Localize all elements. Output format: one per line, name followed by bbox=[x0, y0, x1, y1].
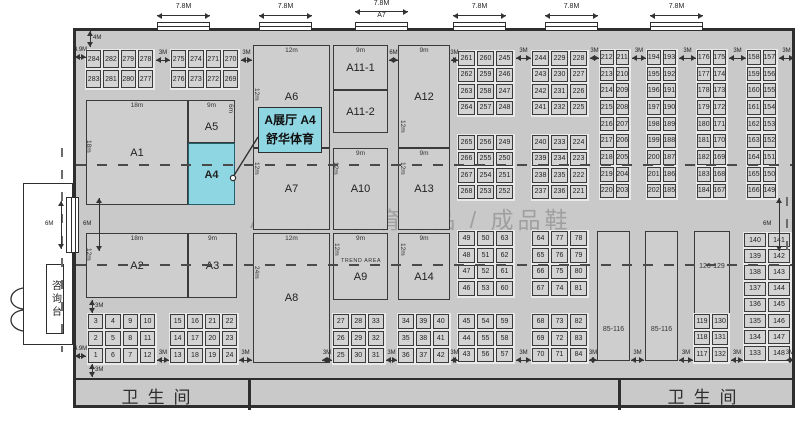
booth-217[interactable]: 217 bbox=[600, 134, 614, 149]
booth-150[interactable]: 150 bbox=[763, 167, 777, 182]
zone-85-116-a[interactable]: 85-116 bbox=[597, 231, 630, 361]
booth-201[interactable]: 201 bbox=[647, 167, 661, 182]
booth-5[interactable]: 5 bbox=[105, 331, 120, 346]
booth-164[interactable]: 164 bbox=[747, 150, 761, 165]
dim-line bbox=[779, 198, 780, 251]
aisle-line bbox=[61, 148, 63, 352]
booth-64[interactable]: 64 bbox=[532, 231, 549, 246]
dim-label: 6M bbox=[45, 221, 53, 227]
dim-arrowhead bbox=[741, 55, 746, 61]
zone-label-A11-2: A11-2 bbox=[334, 106, 387, 118]
booth-56[interactable]: 56 bbox=[477, 348, 494, 363]
dim-arrowhead bbox=[593, 13, 598, 19]
booth-276[interactable]: 276 bbox=[171, 70, 186, 88]
booth-59[interactable]: 59 bbox=[496, 314, 513, 329]
booth-47[interactable]: 47 bbox=[458, 265, 475, 280]
booth-188[interactable]: 188 bbox=[663, 134, 677, 149]
booth-152[interactable]: 152 bbox=[763, 134, 777, 149]
zone-A9[interactable]: 9mA9 bbox=[333, 233, 388, 300]
booth-20[interactable]: 20 bbox=[205, 331, 220, 346]
booth-263[interactable]: 263 bbox=[458, 84, 475, 99]
booth-48[interactable]: 48 bbox=[458, 248, 475, 263]
booth-166[interactable]: 166 bbox=[747, 184, 761, 199]
booth-39[interactable]: 39 bbox=[416, 314, 432, 329]
booth-135[interactable]: 135 bbox=[744, 314, 766, 328]
booth-65[interactable]: 65 bbox=[532, 248, 549, 263]
booth-grid-c-194: 1941931951921961911971901981891991882001… bbox=[646, 49, 678, 200]
dim-arrowhead bbox=[789, 55, 794, 61]
booth-77[interactable]: 77 bbox=[551, 231, 568, 246]
dim-arrowhead bbox=[650, 13, 655, 19]
booth-274[interactable]: 274 bbox=[188, 50, 203, 68]
booth-3[interactable]: 3 bbox=[88, 314, 103, 329]
booth-162[interactable]: 162 bbox=[747, 117, 761, 132]
booth-189[interactable]: 189 bbox=[663, 117, 677, 132]
booth-236[interactable]: 236 bbox=[551, 185, 568, 200]
booth-231[interactable]: 231 bbox=[551, 84, 568, 99]
booth-76[interactable]: 76 bbox=[551, 248, 568, 263]
booth-134[interactable]: 134 bbox=[744, 330, 766, 344]
dim-arrowhead bbox=[776, 198, 782, 203]
booth-40[interactable]: 40 bbox=[433, 314, 449, 329]
booth-71[interactable]: 71 bbox=[551, 348, 568, 363]
booth-140[interactable]: 140 bbox=[744, 233, 766, 247]
booth-49[interactable]: 49 bbox=[458, 231, 475, 246]
booth-9[interactable]: 9 bbox=[123, 314, 138, 329]
booth-21[interactable]: 21 bbox=[205, 314, 220, 329]
dim-arrowhead bbox=[307, 13, 312, 19]
booth-272[interactable]: 272 bbox=[206, 70, 221, 88]
booth-grid-g-34: 343940353841363742 bbox=[397, 313, 451, 365]
zone-label-A9: A9 bbox=[334, 271, 387, 283]
booth-198[interactable]: 198 bbox=[647, 117, 661, 132]
dim-arrowhead bbox=[679, 357, 684, 363]
booth-33[interactable]: 33 bbox=[368, 314, 384, 329]
top-door-1 bbox=[157, 22, 210, 31]
booth-277[interactable]: 277 bbox=[138, 70, 153, 88]
side-dim-label: 12m bbox=[85, 248, 92, 261]
booth-180[interactable]: 180 bbox=[697, 117, 711, 132]
booth-237[interactable]: 237 bbox=[532, 185, 549, 200]
booth-82[interactable]: 82 bbox=[570, 314, 587, 329]
booth-170[interactable]: 170 bbox=[713, 134, 727, 149]
booth-168[interactable]: 168 bbox=[713, 167, 727, 182]
booth-16[interactable]: 16 bbox=[187, 314, 202, 329]
booth-196[interactable]: 196 bbox=[647, 83, 661, 98]
booth-172[interactable]: 172 bbox=[713, 100, 727, 115]
booth-183[interactable]: 183 bbox=[697, 167, 711, 182]
dim-arrowhead bbox=[327, 357, 332, 363]
booth-146[interactable]: 146 bbox=[768, 314, 790, 328]
booth-grid-g-284: 284282279278283281280277 bbox=[85, 49, 155, 90]
dim-label: 3M bbox=[674, 48, 702, 54]
zone-A7[interactable]: A7 bbox=[253, 148, 330, 230]
booth-173[interactable]: 173 bbox=[713, 83, 727, 98]
booth-160[interactable]: 160 bbox=[747, 83, 761, 98]
booth-247[interactable]: 247 bbox=[496, 84, 513, 99]
zone-label-A7: A7 bbox=[254, 183, 329, 195]
booth-55[interactable]: 55 bbox=[477, 331, 494, 346]
dim-arrowhead bbox=[96, 198, 102, 203]
booth-69[interactable]: 69 bbox=[532, 331, 549, 346]
booth-81[interactable]: 81 bbox=[570, 281, 587, 296]
booth-262[interactable]: 262 bbox=[458, 68, 475, 83]
booth-253[interactable]: 253 bbox=[477, 185, 494, 200]
booth-61[interactable]: 61 bbox=[496, 265, 513, 280]
dim-arrowhead bbox=[594, 55, 599, 61]
zone-A4[interactable]: A4 bbox=[188, 143, 235, 205]
booth-243[interactable]: 243 bbox=[532, 68, 549, 83]
booth-224[interactable]: 224 bbox=[570, 135, 587, 150]
booth-184[interactable]: 184 bbox=[697, 184, 711, 199]
dim-arrowhead bbox=[241, 57, 246, 63]
dim-label: 3M bbox=[579, 350, 607, 356]
booth-153[interactable]: 153 bbox=[763, 117, 777, 132]
booth-118[interactable]: 118 bbox=[694, 331, 710, 346]
booth-10[interactable]: 10 bbox=[140, 314, 155, 329]
booth-22[interactable]: 22 bbox=[222, 314, 237, 329]
zone-label-A12: A12 bbox=[399, 91, 449, 103]
zone-label-A10: A10 bbox=[334, 183, 387, 195]
booth-165[interactable]: 165 bbox=[747, 167, 761, 182]
booth-60[interactable]: 60 bbox=[496, 281, 513, 296]
booth-268[interactable]: 268 bbox=[458, 185, 475, 200]
booth-257[interactable]: 257 bbox=[477, 101, 494, 116]
booth-206[interactable]: 206 bbox=[616, 134, 630, 149]
dim-label: 6M bbox=[83, 221, 91, 227]
dim-arrowhead bbox=[165, 57, 170, 63]
booth-18[interactable]: 18 bbox=[187, 348, 202, 363]
booth-130[interactable]: 130 bbox=[712, 314, 728, 329]
booth-28[interactable]: 28 bbox=[351, 314, 367, 329]
booth-119[interactable]: 119 bbox=[694, 314, 710, 329]
booth-62[interactable]: 62 bbox=[496, 248, 513, 263]
booth-131[interactable]: 131 bbox=[712, 331, 728, 346]
booth-185[interactable]: 185 bbox=[663, 184, 677, 199]
booth-68[interactable]: 68 bbox=[532, 314, 549, 329]
booth-240[interactable]: 240 bbox=[532, 135, 549, 150]
booth-200[interactable]: 200 bbox=[647, 150, 661, 165]
dim-arrowhead bbox=[453, 57, 458, 63]
booth-79[interactable]: 79 bbox=[570, 248, 587, 263]
dim-line bbox=[650, 15, 703, 16]
dim-label: 3M bbox=[232, 350, 260, 356]
booth-279[interactable]: 279 bbox=[121, 50, 136, 68]
dim-arrowhead bbox=[58, 244, 64, 249]
side-dim-label: 12m bbox=[333, 243, 340, 256]
dim-arrowhead bbox=[157, 357, 162, 363]
booth-209[interactable]: 209 bbox=[616, 83, 630, 98]
booth-216[interactable]: 216 bbox=[600, 117, 614, 132]
dim-label: 3M bbox=[313, 350, 341, 356]
booth-227[interactable]: 227 bbox=[570, 68, 587, 83]
booth-34[interactable]: 34 bbox=[398, 314, 414, 329]
zone-A8[interactable]: 12mA8 bbox=[253, 233, 330, 363]
booth-74[interactable]: 74 bbox=[551, 281, 568, 296]
booth-258[interactable]: 258 bbox=[477, 84, 494, 99]
booth-139[interactable]: 139 bbox=[744, 249, 766, 263]
booth-222[interactable]: 222 bbox=[570, 168, 587, 183]
dim-label: 4.9M bbox=[67, 346, 95, 352]
booth-215[interactable]: 215 bbox=[600, 100, 614, 115]
booth-226[interactable]: 226 bbox=[570, 84, 587, 99]
zone-label-A13: A13 bbox=[399, 183, 449, 195]
booth-249[interactable]: 249 bbox=[496, 135, 513, 150]
booth-8[interactable]: 8 bbox=[123, 331, 138, 346]
entrance-door-arc-bottom bbox=[11, 310, 23, 331]
booth-grid-g-1: 349102581116712 bbox=[87, 313, 157, 365]
booth-17[interactable]: 17 bbox=[187, 331, 202, 346]
dim-arrowhead bbox=[81, 353, 86, 359]
booth-220[interactable]: 220 bbox=[600, 184, 614, 199]
booth-54[interactable]: 54 bbox=[477, 314, 494, 329]
booth-235[interactable]: 235 bbox=[551, 168, 568, 183]
zone-120-129[interactable]: 120-129 bbox=[694, 231, 730, 315]
booth-67[interactable]: 67 bbox=[532, 281, 549, 296]
dim-arrowhead bbox=[96, 246, 102, 251]
booth-202[interactable]: 202 bbox=[647, 184, 661, 199]
booth-147[interactable]: 147 bbox=[768, 330, 790, 344]
zone-label-A11-1: A11-1 bbox=[334, 62, 387, 74]
dim-arrowhead bbox=[239, 357, 244, 363]
booth-229[interactable]: 229 bbox=[551, 51, 568, 66]
zone-label-A6: A6 bbox=[254, 91, 329, 103]
booth-205[interactable]: 205 bbox=[616, 150, 630, 165]
booth-225[interactable]: 225 bbox=[570, 101, 587, 116]
booth-156[interactable]: 156 bbox=[763, 67, 777, 82]
booth-167[interactable]: 167 bbox=[713, 184, 727, 199]
booth-219[interactable]: 219 bbox=[600, 167, 614, 182]
dim-arrowhead bbox=[779, 55, 784, 61]
dim-line bbox=[545, 15, 598, 16]
booth-259[interactable]: 259 bbox=[477, 68, 494, 83]
booth-161[interactable]: 161 bbox=[747, 100, 761, 115]
booth-213[interactable]: 213 bbox=[600, 67, 614, 82]
booth-11[interactable]: 11 bbox=[140, 331, 155, 346]
top-door-4 bbox=[453, 22, 506, 31]
booth-23[interactable]: 23 bbox=[222, 331, 237, 346]
zone-A11-2[interactable]: A11-2 bbox=[333, 90, 388, 133]
booth-58[interactable]: 58 bbox=[496, 331, 513, 346]
booth-53[interactable]: 53 bbox=[477, 281, 494, 296]
booth-187[interactable]: 187 bbox=[663, 150, 677, 165]
booth-254[interactable]: 254 bbox=[477, 168, 494, 183]
booth-191[interactable]: 191 bbox=[663, 83, 677, 98]
booth-29[interactable]: 29 bbox=[351, 331, 367, 346]
booth-155[interactable]: 155 bbox=[763, 83, 777, 98]
zone-85-116-b[interactable]: 85-116 bbox=[645, 231, 678, 361]
dim-label: 3M bbox=[149, 350, 177, 356]
booth-143[interactable]: 143 bbox=[768, 265, 790, 279]
booth-44[interactable]: 44 bbox=[458, 331, 475, 346]
booth-242[interactable]: 242 bbox=[532, 84, 549, 99]
booth-19[interactable]: 19 bbox=[205, 348, 220, 363]
booth-73[interactable]: 73 bbox=[551, 314, 568, 329]
booth-214[interactable]: 214 bbox=[600, 83, 614, 98]
zone-top-dim-label: 9m bbox=[334, 150, 387, 157]
booth-32[interactable]: 32 bbox=[368, 331, 384, 346]
booth-192[interactable]: 192 bbox=[663, 67, 677, 82]
booth-174[interactable]: 174 bbox=[713, 67, 727, 82]
dim-arrowhead bbox=[403, 9, 408, 15]
booth-283[interactable]: 283 bbox=[86, 70, 101, 88]
booth-grid-c-176: 1761751771741781731791721801711811701821… bbox=[696, 49, 728, 200]
booth-269[interactable]: 269 bbox=[223, 70, 238, 88]
booth-273[interactable]: 273 bbox=[188, 70, 203, 88]
booth-80[interactable]: 80 bbox=[570, 265, 587, 280]
booth-232[interactable]: 232 bbox=[551, 101, 568, 116]
booth-136[interactable]: 136 bbox=[744, 298, 766, 312]
booth-264[interactable]: 264 bbox=[458, 101, 475, 116]
booth-186[interactable]: 186 bbox=[663, 167, 677, 182]
booth-grid-g-261: 261260245262259246263258247264257248 bbox=[457, 50, 515, 117]
booth-26[interactable]: 26 bbox=[333, 331, 349, 346]
booth-169[interactable]: 169 bbox=[713, 150, 727, 165]
booth-35[interactable]: 35 bbox=[398, 331, 414, 346]
booth-138[interactable]: 138 bbox=[744, 265, 766, 279]
dim-arrowhead bbox=[501, 13, 506, 19]
booth-199[interactable]: 199 bbox=[647, 134, 661, 149]
zone-A10[interactable]: 9mA10 bbox=[333, 148, 388, 230]
booth-233[interactable]: 233 bbox=[551, 135, 568, 150]
dim-arrowhead bbox=[392, 357, 397, 363]
dim-line bbox=[355, 11, 408, 12]
booth-51[interactable]: 51 bbox=[477, 248, 494, 263]
dim-label: 4.9M bbox=[67, 47, 95, 53]
booth-207[interactable]: 207 bbox=[616, 117, 630, 132]
booth-45[interactable]: 45 bbox=[458, 314, 475, 329]
booth-265[interactable]: 265 bbox=[458, 135, 475, 150]
booth-38[interactable]: 38 bbox=[416, 331, 432, 346]
top-door-a7-label: A7 bbox=[355, 12, 408, 19]
booth-63[interactable]: 63 bbox=[496, 231, 513, 246]
booth-203[interactable]: 203 bbox=[616, 184, 630, 199]
left-wall-door bbox=[66, 197, 79, 253]
booth-208[interactable]: 208 bbox=[616, 100, 630, 115]
booth-46[interactable]: 46 bbox=[458, 281, 475, 296]
booth-282[interactable]: 282 bbox=[103, 50, 118, 68]
booth-144[interactable]: 144 bbox=[768, 282, 790, 296]
zone-label-A2: A2 bbox=[87, 260, 187, 272]
booth-6[interactable]: 6 bbox=[105, 348, 120, 363]
booth-14[interactable]: 14 bbox=[170, 331, 185, 346]
dim-label: 3M bbox=[581, 48, 609, 54]
zone-label-A1: A1 bbox=[87, 147, 187, 159]
booth-callout-line1: A展厅 A4 bbox=[264, 111, 315, 130]
booth-grid-g-265: 265256249266255250267254251268253252 bbox=[457, 134, 515, 201]
booth-78[interactable]: 78 bbox=[570, 231, 587, 246]
booth-151[interactable]: 151 bbox=[763, 150, 777, 165]
booth-241[interactable]: 241 bbox=[532, 101, 549, 116]
booth-238[interactable]: 238 bbox=[532, 168, 549, 183]
booth-50[interactable]: 50 bbox=[477, 231, 494, 246]
booth-41[interactable]: 41 bbox=[433, 331, 449, 346]
booth-37[interactable]: 37 bbox=[416, 348, 432, 363]
aisle-line bbox=[76, 164, 792, 166]
booth-137[interactable]: 137 bbox=[744, 282, 766, 296]
booth-190[interactable]: 190 bbox=[663, 100, 677, 115]
booth-52[interactable]: 52 bbox=[477, 265, 494, 280]
booth-179[interactable]: 179 bbox=[697, 100, 711, 115]
booth-280[interactable]: 280 bbox=[121, 70, 136, 88]
booth-195[interactable]: 195 bbox=[647, 67, 661, 82]
dim-label: 3M bbox=[672, 350, 700, 356]
booth-83[interactable]: 83 bbox=[570, 331, 587, 346]
booth-218[interactable]: 218 bbox=[600, 150, 614, 165]
restroom-divider bbox=[248, 380, 251, 410]
booth-callout: A展厅 A4 舒华体育 bbox=[258, 107, 322, 153]
booth-204[interactable]: 204 bbox=[616, 167, 630, 182]
booth-72[interactable]: 72 bbox=[551, 331, 568, 346]
booth-163[interactable]: 163 bbox=[747, 134, 761, 149]
booth-75[interactable]: 75 bbox=[551, 265, 568, 280]
booth-251[interactable]: 251 bbox=[496, 168, 513, 183]
booth-171[interactable]: 171 bbox=[713, 117, 727, 132]
booth-178[interactable]: 178 bbox=[697, 83, 711, 98]
zone-label-85-116-a: 85-116 bbox=[598, 326, 629, 333]
booth-252[interactable]: 252 bbox=[496, 185, 513, 200]
booth-248[interactable]: 248 bbox=[496, 101, 513, 116]
dim-label: 6M bbox=[380, 50, 408, 56]
booth-15[interactable]: 15 bbox=[170, 314, 185, 329]
booth-145[interactable]: 145 bbox=[768, 298, 790, 312]
booth-2[interactable]: 2 bbox=[88, 331, 103, 346]
dim-label: 6M bbox=[763, 221, 771, 227]
booth-grid-c-140: 1401411391421381431371441361451351461341… bbox=[743, 232, 792, 363]
zone-A13[interactable]: 9mA13 bbox=[398, 148, 450, 230]
booth-267[interactable]: 267 bbox=[458, 168, 475, 183]
dim-label: 3M bbox=[441, 350, 469, 356]
dim-arrowhead bbox=[156, 57, 161, 63]
booth-271[interactable]: 271 bbox=[206, 50, 221, 68]
top-door-width-label: 7.8M bbox=[259, 3, 312, 10]
dim-label: 4M bbox=[93, 35, 101, 41]
booth-30[interactable]: 30 bbox=[351, 348, 367, 363]
booth-7[interactable]: 7 bbox=[123, 348, 138, 363]
booth-4[interactable]: 4 bbox=[105, 314, 120, 329]
booth-66[interactable]: 66 bbox=[532, 265, 549, 280]
zone-A1[interactable]: 18mA1 bbox=[86, 100, 188, 205]
booth-246[interactable]: 246 bbox=[496, 68, 513, 83]
booth-149[interactable]: 149 bbox=[763, 184, 777, 199]
side-dim-label: 18m bbox=[85, 140, 92, 153]
restroom-band: 卫生间卫生间 bbox=[73, 378, 795, 408]
booth-154[interactable]: 154 bbox=[763, 100, 777, 115]
booth-182[interactable]: 182 bbox=[697, 150, 711, 165]
zone-label-A5: A5 bbox=[189, 121, 234, 133]
booth-159[interactable]: 159 bbox=[747, 67, 761, 82]
zone-top-dim-label: 9m bbox=[189, 235, 236, 242]
booth-260[interactable]: 260 bbox=[477, 51, 494, 66]
entrance-door-arc-top bbox=[11, 288, 23, 309]
booth-230[interactable]: 230 bbox=[551, 68, 568, 83]
dim-arrowhead bbox=[679, 55, 684, 61]
booth-177[interactable]: 177 bbox=[697, 67, 711, 82]
booth-256[interactable]: 256 bbox=[477, 135, 494, 150]
dim-label: 3M bbox=[773, 48, 800, 54]
booth-181[interactable]: 181 bbox=[697, 134, 711, 149]
booth-27[interactable]: 27 bbox=[333, 314, 349, 329]
side-dim-label: 12m bbox=[399, 120, 406, 133]
booth-grid-c-158: 1581571591561601551611541621531631521641… bbox=[746, 49, 778, 200]
booth-210[interactable]: 210 bbox=[616, 67, 630, 82]
restroom-right-label: 卫生间 bbox=[618, 383, 795, 408]
booth-197[interactable]: 197 bbox=[647, 100, 661, 115]
booth-281[interactable]: 281 bbox=[103, 70, 118, 88]
zone-label-A14: A14 bbox=[399, 271, 449, 283]
booth-221[interactable]: 221 bbox=[570, 185, 587, 200]
booth-grid-g-43: 455459445558435657 bbox=[457, 313, 515, 364]
